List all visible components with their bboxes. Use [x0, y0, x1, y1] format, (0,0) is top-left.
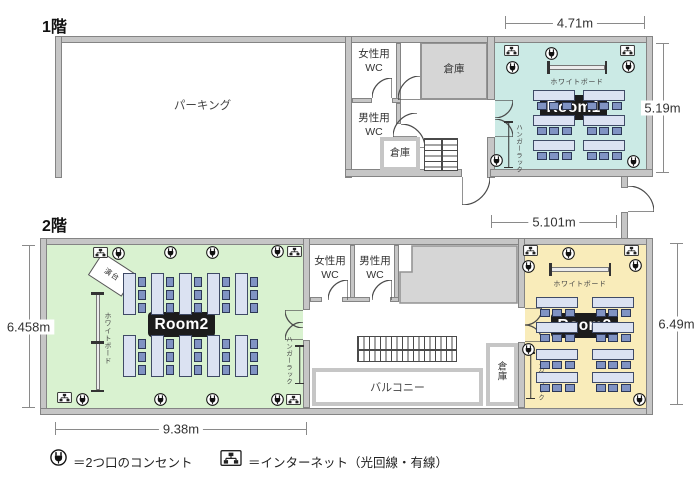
table: [207, 335, 220, 377]
internet-icon: [523, 245, 538, 256]
chair: [194, 352, 202, 362]
chair: [587, 127, 597, 135]
parking-label: パーキング: [150, 99, 255, 114]
table: [235, 335, 248, 377]
chair: [562, 152, 572, 160]
chair: [599, 102, 609, 110]
chair: [549, 102, 559, 110]
chair: [250, 365, 258, 375]
chair: [537, 127, 547, 135]
dimension-right-height-1f: 5.19m: [656, 43, 669, 173]
storage-label-2f: 倉庫: [496, 361, 506, 381]
chair: [612, 102, 622, 110]
table: [583, 90, 625, 101]
table: [533, 140, 575, 151]
dimension-right-height-2f: 6.49m: [670, 243, 683, 405]
chair: [166, 352, 174, 362]
floor2-title: 2階: [42, 212, 67, 236]
whiteboard: [91, 292, 104, 392]
wc-male-label-2f: 男性用 WC: [351, 255, 399, 282]
stairs: [357, 336, 457, 362]
chair: [166, 339, 174, 349]
wc-female-label-2f: 女性用 WC: [306, 255, 354, 282]
chair: [540, 309, 550, 317]
chair: [138, 303, 146, 313]
chair: [250, 303, 258, 313]
wc-female-label-1f: 女性用 WC: [350, 48, 398, 75]
chair: [250, 277, 258, 287]
table: [179, 335, 192, 377]
chair: [596, 384, 606, 392]
storage-small-label: 倉庫: [380, 147, 420, 160]
chair: [250, 352, 258, 362]
chair: [562, 127, 572, 135]
chair: [608, 309, 618, 317]
door-arc: [328, 280, 348, 300]
chair: [565, 384, 575, 392]
outlet-icon: [76, 393, 89, 406]
legend-internet-label: ＝インターネット（光回線・有線）: [248, 452, 448, 471]
outlet-icon: [506, 61, 519, 74]
outlet-icon: [206, 246, 219, 259]
outlet-icon: [271, 245, 284, 258]
chair: [166, 290, 174, 300]
chair: [194, 339, 202, 349]
legend-outlet-label: ＝2つ口のコンセント: [73, 452, 192, 471]
gray-void-area: [399, 245, 518, 304]
whiteboard: [549, 263, 611, 276]
chair: [621, 309, 631, 317]
internet-icon: [624, 245, 639, 256]
outlet-icon: [112, 247, 125, 260]
chair: [540, 384, 550, 392]
table: [536, 297, 578, 308]
wall: [40, 238, 653, 245]
table: [592, 372, 634, 383]
chair: [596, 309, 606, 317]
outlet-icon: [206, 393, 219, 406]
chair: [552, 309, 562, 317]
hanger-rack: [526, 352, 535, 399]
door-arc: [372, 280, 392, 300]
chair: [138, 339, 146, 349]
wall: [303, 340, 310, 408]
wall: [352, 98, 372, 103]
outlet-icon: [164, 246, 177, 259]
chair: [565, 361, 575, 369]
table: [536, 349, 578, 360]
dimension-left-height-2f: 6.458m: [22, 245, 35, 408]
floor1-title: 1階: [42, 13, 67, 37]
chair: [552, 384, 562, 392]
table: [592, 297, 634, 308]
balcony-label: バルコニー: [330, 381, 465, 395]
outlet-icon: [490, 154, 503, 167]
door-arc: [372, 78, 392, 98]
chair: [540, 361, 550, 369]
wall: [55, 36, 62, 178]
chair: [552, 361, 562, 369]
chair: [222, 352, 230, 362]
outlet-icon: [633, 393, 646, 406]
table: [123, 273, 136, 315]
whiteboard: [547, 61, 607, 74]
chair: [166, 365, 174, 375]
chair: [596, 334, 606, 342]
hanger-rack: [295, 345, 304, 384]
outlet-icon: [522, 260, 535, 273]
chair: [608, 361, 618, 369]
door-arc: [628, 186, 654, 212]
outlet-icon: [271, 393, 284, 406]
room2-label: Room2: [148, 312, 215, 337]
table: [235, 273, 248, 315]
chair: [138, 352, 146, 362]
wall: [40, 408, 653, 415]
wall: [621, 176, 628, 188]
whiteboard-label: ホワイトボード: [537, 77, 617, 87]
table: [207, 273, 220, 315]
outlet-icon: [522, 343, 535, 356]
table: [179, 273, 192, 315]
chair: [612, 152, 622, 160]
internet-icon: [287, 246, 302, 257]
table: [151, 273, 164, 315]
chair: [250, 339, 258, 349]
wall: [646, 238, 653, 415]
wall: [55, 36, 653, 43]
chair: [549, 152, 559, 160]
chair: [608, 384, 618, 392]
chair: [222, 365, 230, 375]
storage-large-label: 倉庫: [420, 63, 488, 77]
internet-icon: [220, 450, 242, 466]
table: [536, 372, 578, 383]
chair: [222, 277, 230, 287]
outlet-icon: [627, 155, 640, 168]
table: [533, 90, 575, 101]
dimension-entrance-width: 5.101m: [491, 215, 617, 228]
chair: [599, 127, 609, 135]
chair: [250, 290, 258, 300]
chair: [562, 102, 572, 110]
chair: [596, 361, 606, 369]
hanger-rack-label: ハンガーラック: [284, 336, 291, 385]
table: [592, 349, 634, 360]
stairs: [424, 138, 458, 171]
chair: [549, 127, 559, 135]
internet-icon: [620, 45, 635, 56]
chair: [552, 334, 562, 342]
wall: [310, 297, 322, 302]
chair: [222, 303, 230, 313]
hanger-rack: [504, 121, 513, 168]
chair: [537, 102, 547, 110]
chair: [166, 277, 174, 287]
chair: [587, 152, 597, 160]
chair: [194, 365, 202, 375]
chair: [166, 303, 174, 313]
wc-male-label-1f: 男性用 WC: [350, 112, 398, 139]
door-arc: [398, 76, 420, 100]
whiteboard-label: ホワイトボード: [104, 312, 111, 365]
chair: [222, 290, 230, 300]
floor-plan: ホワイトボード ホワイトボード ホワイトボード ハンガーラック ハンガーラック …: [0, 0, 700, 480]
table: [533, 115, 575, 126]
chair: [222, 339, 230, 349]
chair: [621, 361, 631, 369]
wall: [487, 36, 495, 100]
chair: [621, 384, 631, 392]
chair: [194, 303, 202, 313]
outlet-icon: [629, 259, 642, 272]
internet-icon: [504, 45, 519, 56]
table: [536, 322, 578, 333]
internet-icon: [93, 247, 108, 258]
table: [151, 335, 164, 377]
outlet-icon: [562, 247, 575, 260]
chair: [587, 102, 597, 110]
chair: [599, 152, 609, 160]
table: [583, 115, 625, 126]
dimension-bottom-width: 9.38m: [55, 422, 307, 435]
table: [123, 335, 136, 377]
dimension-top-width: 4.71m: [505, 16, 645, 29]
outlet-icon: [154, 393, 167, 406]
chair: [612, 127, 622, 135]
whiteboard-label: ホワイトボード: [539, 279, 621, 289]
chair: [565, 309, 575, 317]
chair: [621, 334, 631, 342]
chair: [565, 334, 575, 342]
chair: [138, 290, 146, 300]
chair: [194, 277, 202, 287]
table: [592, 322, 634, 333]
door-arc: [495, 100, 513, 118]
chair: [194, 290, 202, 300]
internet-icon: [286, 394, 301, 405]
chair: [138, 365, 146, 375]
internet-icon: [57, 392, 72, 403]
outlet-icon: [545, 47, 558, 60]
chair: [138, 277, 146, 287]
wall: [621, 212, 628, 240]
table: [583, 140, 625, 151]
outlet-icon: [50, 449, 67, 466]
chair: [540, 334, 550, 342]
door-arc: [462, 177, 490, 205]
outlet-icon: [622, 60, 635, 73]
hanger-rack-label: ハンガーラック: [514, 124, 521, 173]
chair: [537, 152, 547, 160]
chair: [608, 334, 618, 342]
